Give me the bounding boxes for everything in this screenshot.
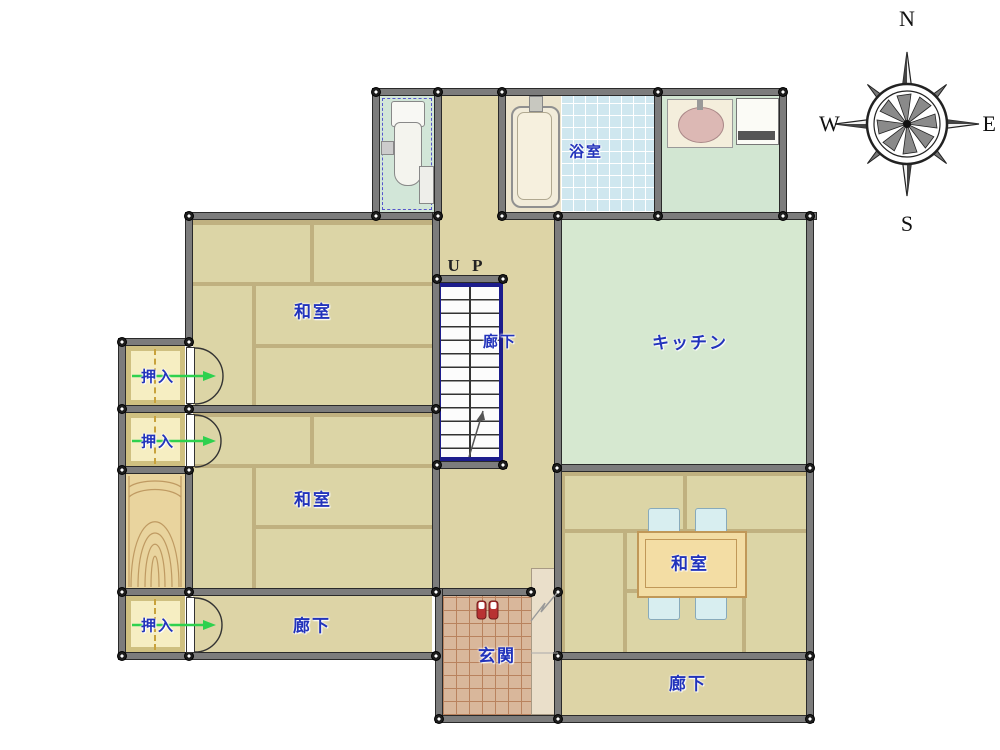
- corridor-top-floor: [442, 96, 498, 212]
- pillar-post: [184, 404, 194, 414]
- wall-segment: [118, 588, 440, 596]
- wall-segment: [498, 88, 506, 220]
- tatami-mat: [256, 286, 432, 344]
- pillar-post: [433, 211, 443, 221]
- closet-door-panel: [186, 347, 195, 404]
- pillar-post: [433, 87, 443, 97]
- label-oshiire-2: 押入: [141, 431, 175, 452]
- closet-door-panel: [186, 597, 195, 653]
- pillar-post: [371, 211, 381, 221]
- wall-segment: [118, 338, 126, 660]
- pillar-post: [553, 651, 563, 661]
- stairs: [437, 283, 503, 461]
- compass-east-label: E: [983, 111, 996, 136]
- label-bathroom: 浴室: [569, 141, 603, 162]
- wall-segment: [654, 88, 662, 220]
- compass-rose: N S W E: [815, 2, 1000, 234]
- pillar-post: [431, 651, 441, 661]
- compass-west-label: W: [819, 111, 840, 136]
- wall-segment: [433, 275, 507, 283]
- wall-segment: [118, 466, 193, 474]
- pillar-post: [497, 211, 507, 221]
- wall-segment: [185, 212, 193, 346]
- wall-segment: [553, 652, 814, 660]
- label-kitchen: キッチン: [652, 329, 728, 354]
- pillar-post: [184, 337, 194, 347]
- wall-segment: [779, 88, 787, 220]
- wood-floor: [126, 474, 185, 588]
- label-rouka-stairs: 廊下: [483, 331, 517, 352]
- pillar-post: [117, 587, 127, 597]
- label-oshiire-3: 押入: [141, 615, 175, 636]
- label-washitsu-3: 和室: [671, 550, 709, 575]
- tatami-mat: [193, 225, 310, 282]
- tatami-mat: [746, 533, 806, 652]
- tatami-mat: [256, 348, 432, 405]
- pillar-post: [432, 460, 442, 470]
- wall-segment: [118, 338, 193, 346]
- wall-segment: [185, 466, 193, 596]
- bath-faucet-icon: [529, 96, 543, 112]
- pillar-post: [431, 587, 441, 597]
- pillar-post: [184, 211, 194, 221]
- wall-segment: [435, 588, 535, 596]
- wall-segment: [118, 405, 440, 413]
- pillar-post: [552, 463, 562, 473]
- pillar-post: [778, 87, 788, 97]
- pillar-post: [653, 211, 663, 221]
- pillar-post: [653, 87, 663, 97]
- pillar-post: [553, 211, 563, 221]
- tatami-mat: [256, 468, 432, 525]
- floor-plan: 和室 和室 和室 キッチン 浴室 玄関 押入 押入 押入 廊下 廊下 廊下 U …: [0, 0, 1000, 750]
- tatami-mat: [565, 533, 623, 652]
- label-genkan: 玄関: [478, 642, 516, 667]
- pillar-post: [553, 714, 563, 724]
- label-rouka-bottom-right: 廊下: [669, 670, 707, 695]
- tatami-mat: [193, 468, 252, 588]
- washbasin-icon: [678, 107, 724, 143]
- pillar-post: [805, 651, 815, 661]
- tatami-mat: [256, 529, 432, 588]
- washbasin-faucet-icon: [697, 99, 703, 110]
- label-oshiire-1: 押入: [141, 366, 175, 387]
- tatami-mat: [314, 417, 432, 464]
- pillar-post: [498, 460, 508, 470]
- wall-segment: [118, 652, 440, 660]
- label-washitsu-2: 和室: [294, 486, 332, 511]
- compass-north-label: N: [899, 6, 915, 31]
- bathtub-rim: [517, 112, 552, 200]
- wall-segment: [435, 715, 814, 723]
- washing-machine-panel: [738, 131, 775, 140]
- pillar-post: [184, 587, 194, 597]
- pillar-post: [805, 211, 815, 221]
- toilet-bowl-icon: [394, 122, 422, 186]
- label-washitsu-1: 和室: [294, 298, 332, 323]
- wall-segment: [433, 461, 507, 469]
- tatami-mat: [193, 417, 310, 464]
- pillar-post: [805, 463, 815, 473]
- pillar-post: [434, 714, 444, 724]
- wall-segment: [434, 88, 442, 220]
- label-rouka-bottom-left: 廊下: [293, 612, 331, 637]
- pillar-post: [553, 587, 563, 597]
- tatami-mat: [193, 286, 252, 405]
- pillar-post: [117, 337, 127, 347]
- pillar-post: [431, 404, 441, 414]
- pillar-post: [498, 274, 508, 284]
- pillar-post: [778, 211, 788, 221]
- closet-door-panel: [186, 414, 195, 467]
- pillar-post: [117, 465, 127, 475]
- pillar-post: [497, 87, 507, 97]
- wall-segment: [185, 212, 442, 220]
- wall-segment: [372, 88, 380, 220]
- pillar-post: [805, 714, 815, 724]
- pillar-post: [432, 274, 442, 284]
- toilet-control-panel-icon: [419, 166, 434, 204]
- pillar-post: [117, 404, 127, 414]
- label-stairs-up: U P: [448, 256, 487, 276]
- pillar-post: [526, 587, 536, 597]
- compass-south-label: S: [901, 211, 913, 234]
- pillar-post: [371, 87, 381, 97]
- pillar-post: [117, 651, 127, 661]
- wall-segment: [553, 464, 814, 472]
- tatami-mat: [314, 225, 432, 282]
- toilet-paper-holder-icon: [381, 141, 394, 155]
